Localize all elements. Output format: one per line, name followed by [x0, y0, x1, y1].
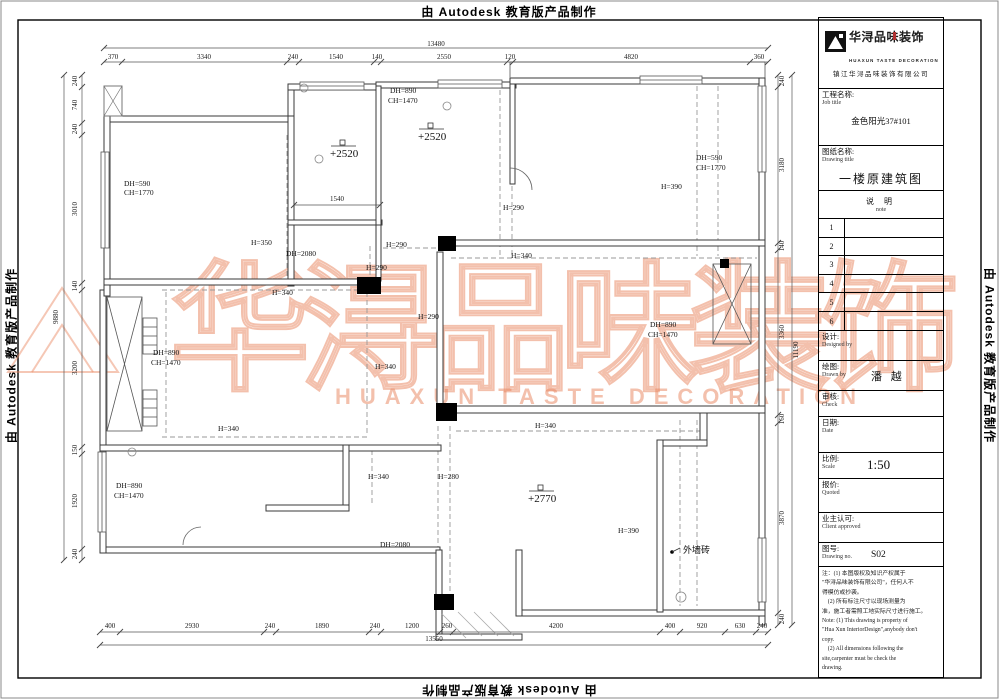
dim-left: 240 — [71, 534, 81, 574]
title-block: 华浔品味装饰 HUAXUN TASTE DECORATION 镇江华浔品味装饰有… — [818, 17, 944, 678]
note-row-number: 3 — [819, 256, 845, 274]
label-sill-height: CH=1470 — [151, 358, 181, 367]
dim-left: 3200 — [71, 348, 81, 388]
label-door-height: DH=890 — [390, 86, 416, 95]
label-door-height: DH=2080 — [286, 249, 316, 258]
designed-by-label-cn: 设计: — [822, 333, 940, 342]
scale-value: 1:50 — [867, 457, 890, 473]
dim-bottom: 1890 — [302, 622, 342, 630]
job-title-label-cn: 工程名称: — [822, 91, 940, 100]
drawing-title-label-cn: 图纸名称: — [822, 148, 940, 157]
note-rows-table: 1 2 3 4 5 6 — [819, 219, 943, 331]
quoted-label-cn: 报价: — [822, 481, 940, 490]
autodesk-banner-top: 由 Autodesk 教育版产品制作 — [359, 3, 659, 20]
note-row-number: 5 — [819, 293, 845, 311]
dim-bottom: 1200 — [392, 622, 432, 630]
note-line: drawing. — [822, 664, 940, 673]
label-beam-height: H=390 — [661, 182, 682, 191]
drawing-title-value: 一楼原建筑图 — [822, 170, 940, 187]
designed-by-section: 设计: Designed by — [819, 331, 943, 361]
dim-left-total: 9880 — [52, 297, 62, 337]
drawing-no-value: S02 — [871, 550, 886, 560]
note-line: 准，施工者需照工地实际尺寸进行施工。 — [822, 608, 940, 617]
dim-right: 3360 — [778, 312, 788, 352]
dim-inner-1540: 1540 — [317, 195, 357, 203]
quoted-section: 报价: Quoted — [819, 479, 943, 513]
dim-right-total: 11190 — [792, 330, 802, 370]
designed-by-label-en: Designed by — [822, 342, 940, 349]
dim-right: 3180 — [778, 145, 788, 185]
note-line: "华浔品味装饰有限公司"，任何人不 — [822, 579, 940, 588]
dim-right: 240 — [778, 599, 788, 639]
dim-left: 1920 — [71, 481, 81, 521]
dim-top-total: 13480 — [416, 40, 456, 48]
note-header-cn: 说 明 — [822, 196, 940, 207]
note-line: (2) All dimensions following the — [822, 645, 940, 654]
drawn-by-value: 潘 越 — [871, 368, 905, 384]
note-line: site,carpenter must be check the — [822, 655, 940, 664]
dim-bottom: 240 — [742, 622, 782, 630]
label-door-height: DH=890 — [650, 320, 676, 329]
note-row: 4 — [819, 275, 943, 294]
label-door-height: DH=890 — [153, 348, 179, 357]
note-row: 1 — [819, 219, 943, 238]
date-section: 日期: Date — [819, 417, 943, 453]
note-row-number: 1 — [819, 219, 845, 237]
note-row-number: 2 — [819, 238, 845, 256]
label-beam-height: H=290 — [418, 312, 439, 321]
label-beam-height: H=340 — [535, 421, 556, 430]
brand-name: 华浔品味装饰 — [849, 31, 924, 44]
dim-bottom-total: 13550 — [414, 635, 454, 643]
note-row: 6 — [819, 312, 943, 331]
label-beam-height: H=340 — [375, 362, 396, 371]
client-approved-section: 业主认可: Client approved — [819, 513, 943, 543]
check-label-en: Check — [822, 402, 940, 409]
dim-bottom: 260 — [427, 622, 467, 630]
label-beam-height: H=340 — [511, 251, 532, 260]
drawing-no-section: 图号: Drawing no. S02 — [819, 543, 943, 567]
label-level: +2520 — [330, 148, 358, 160]
note-line: copy. — [822, 636, 940, 645]
label-door-height: DH=890 — [116, 481, 142, 490]
job-title-label-en: Job title — [822, 100, 940, 107]
title-block-logo-section: 华浔品味装饰 HUAXUN TASTE DECORATION 镇江华浔品味装饰有… — [819, 18, 943, 89]
drawing-title-section: 图纸名称: Drawing title 一楼原建筑图 — [819, 146, 943, 191]
brand-company: 镇江华浔品味装饰有限公司 — [822, 68, 940, 78]
dim-top: 1540 — [316, 53, 356, 61]
note-row-number: 6 — [819, 312, 845, 331]
label-beam-height: H=290 — [366, 263, 387, 272]
label-sill-height: CH=1470 — [648, 330, 678, 339]
dim-right: 3870 — [778, 498, 788, 538]
client-approved-label-en: Client approved — [822, 524, 940, 531]
dim-left: 240 — [71, 109, 81, 149]
label-door-height: DH=2080 — [380, 540, 410, 549]
label-beam-height: H=340 — [218, 424, 239, 433]
drawing-title-label-en: Drawing title — [822, 157, 940, 164]
autodesk-banner-bottom: 由 Autodesk 教育版产品制作 — [359, 682, 659, 699]
scale-section: 比例: Scale 1:50 — [819, 453, 943, 479]
job-title-section: 工程名称: Job title 金色阳光37#101 — [819, 89, 943, 146]
note-line: 得模仿或抄袭。 — [822, 589, 940, 598]
title-block-notes: 注：(1) 本图版权及知识产权属于 "华浔品味装饰有限公司"，任何人不 得模仿或… — [819, 567, 943, 676]
check-section: 审核: Check — [819, 391, 943, 417]
label-beam-height: H=290 — [386, 240, 407, 249]
dim-top: 370 — [93, 53, 133, 61]
brand-latin: HUAXUN TASTE DECORATION — [849, 58, 940, 63]
label-door-height: DH=590 — [124, 179, 150, 188]
dim-right: 160 — [778, 399, 788, 439]
cad-page: { "edges": { "autodesk": "由 Autodesk 教育版… — [0, 0, 1000, 700]
label-sill-height: CH=1470 — [114, 491, 144, 500]
dim-top: 240 — [273, 53, 313, 61]
dim-top: 4820 — [611, 53, 651, 61]
date-label-en: Date — [822, 428, 940, 435]
dim-bottom: 400 — [90, 622, 130, 630]
date-label-cn: 日期: — [822, 419, 940, 428]
dim-top: 3340 — [184, 53, 224, 61]
autodesk-banner-right: 由 Autodesk 教育版产品制作 — [982, 256, 999, 456]
dim-top: 360 — [739, 53, 779, 61]
note-row-number: 4 — [819, 275, 845, 293]
huaxun-logo-icon — [825, 31, 846, 57]
note-row: 3 — [819, 256, 943, 275]
label-beam-height: H=390 — [618, 526, 639, 535]
client-approved-label-cn: 业主认可: — [822, 515, 940, 524]
label-beam-height: H=280 — [438, 472, 459, 481]
job-title-value: 金色阳光37#101 — [822, 115, 940, 127]
dim-top: 2550 — [424, 53, 464, 61]
drawn-by-section: 绘图: Drawn by 潘 越 — [819, 361, 943, 391]
label-beam-height: H=350 — [251, 238, 272, 247]
autodesk-banner-left: 由 Autodesk 教育版产品制作 — [3, 256, 20, 456]
label-door-height: DH=590 — [696, 153, 722, 162]
note-line: "Hua Xun InteriorDesign",anybody don't — [822, 626, 940, 635]
note-line: (2) 所有标注尺寸以现场测量为 — [822, 598, 940, 607]
dim-bottom: 920 — [682, 622, 722, 630]
brand-accent — [893, 32, 896, 40]
dim-left: 140 — [71, 266, 81, 306]
label-sill-height: CH=1770 — [124, 188, 154, 197]
dim-bottom: 240 — [355, 622, 395, 630]
label-exterior-wall-tile: 外墙砖 — [683, 543, 710, 556]
dim-left: 3010 — [71, 189, 81, 229]
dim-bottom: 2930 — [172, 622, 212, 630]
note-row: 5 — [819, 293, 943, 312]
dim-top: 140 — [357, 53, 397, 61]
dim-right: 240 — [778, 61, 788, 101]
note-row: 2 — [819, 238, 943, 257]
label-beam-height: H=340 — [272, 288, 293, 297]
label-level: +2770 — [528, 493, 556, 505]
label-sill-height: CH=1770 — [696, 163, 726, 172]
dim-bottom: 4200 — [536, 622, 576, 630]
label-sill-height: CH=1470 — [388, 96, 418, 105]
quoted-label-en: Quoted — [822, 490, 940, 497]
dim-bottom: 240 — [250, 622, 290, 630]
dim-right: 140 — [778, 226, 788, 266]
label-beam-height: H=340 — [368, 472, 389, 481]
note-header-section: 说 明 note — [819, 191, 943, 219]
dim-left: 150 — [71, 430, 81, 470]
label-beam-height: H=290 — [503, 203, 524, 212]
dim-top: 120 — [490, 53, 530, 61]
leader-waiqiangzhuan — [670, 548, 680, 554]
label-level: +2520 — [418, 131, 446, 143]
check-label-cn: 审核: — [822, 393, 940, 402]
note-line: Note: (1) This drawing is property of — [822, 617, 940, 626]
note-line: 注：(1) 本图版权及知识产权属于 — [822, 570, 940, 579]
note-header-en: note — [822, 207, 940, 213]
